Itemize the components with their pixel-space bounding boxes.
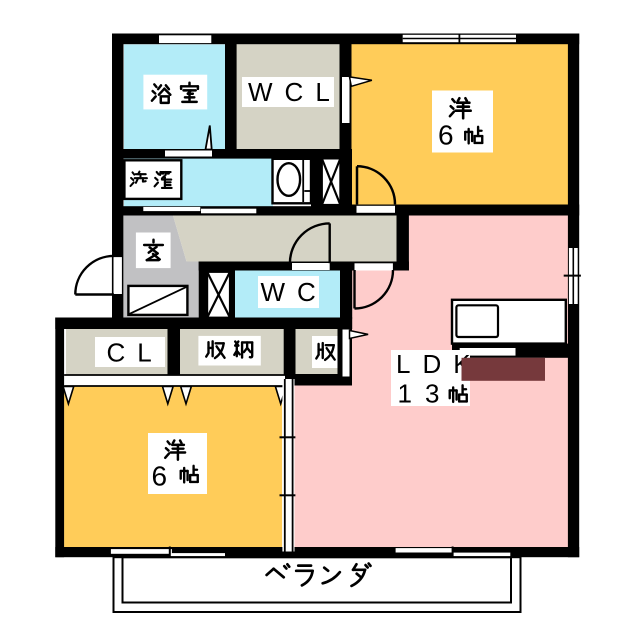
svg-text:6: 6 [152,460,168,491]
svg-text:WCL: WCL [248,77,342,107]
svg-text:13: 13 [398,379,453,409]
svg-text:6: 6 [438,120,454,151]
svg-text:CL: CL [107,338,164,368]
svg-text:WC: WC [261,277,328,307]
